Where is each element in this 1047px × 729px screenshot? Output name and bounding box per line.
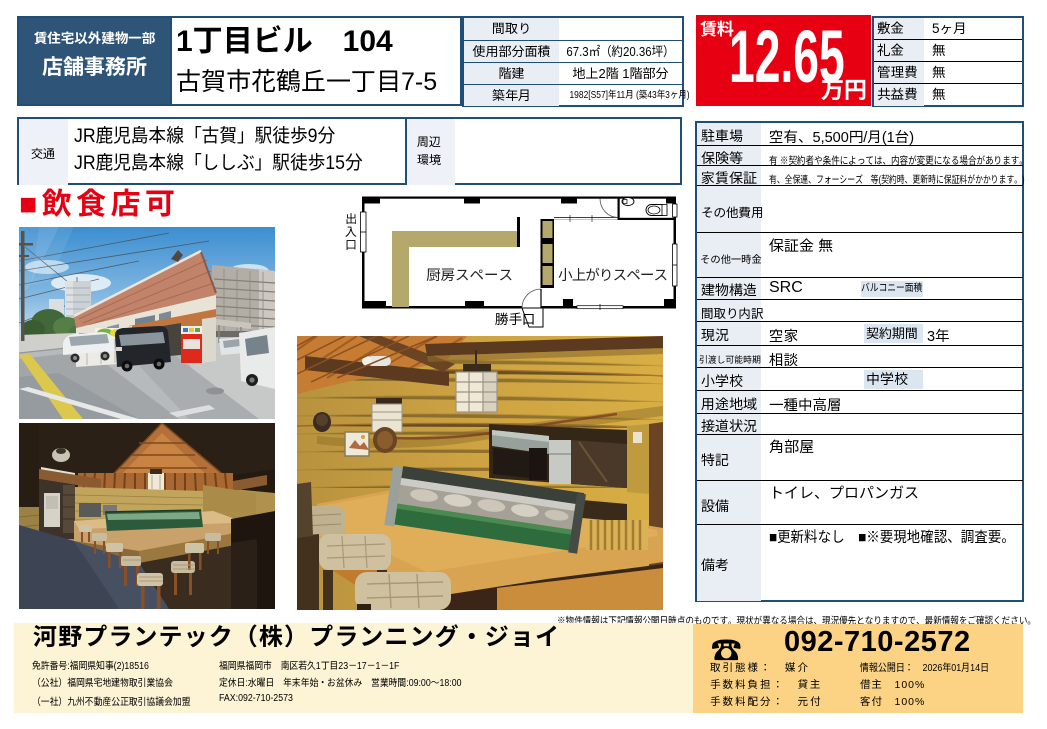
svg-text:口: 口 — [345, 238, 357, 252]
svg-text:小上がりスペース: 小上がりスペース — [558, 267, 668, 284]
svg-text:入: 入 — [345, 225, 357, 239]
svg-text:厨房スペース: 厨房スペース — [426, 268, 513, 284]
svg-text:勝手口: 勝手口 — [495, 312, 536, 327]
svg-text:出: 出 — [345, 212, 357, 226]
